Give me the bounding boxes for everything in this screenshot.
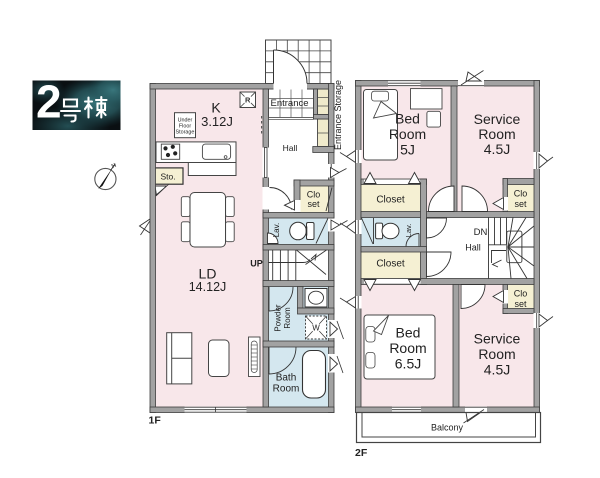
svg-text:set: set	[514, 199, 527, 209]
svg-text:Room: Room	[478, 346, 515, 362]
svg-text:Room: Room	[389, 340, 426, 356]
svg-text:Bed: Bed	[395, 111, 420, 127]
svg-text:Clo: Clo	[514, 289, 528, 299]
svg-text:1F: 1F	[149, 415, 162, 427]
svg-text:Room: Room	[478, 126, 515, 142]
svg-text:Lav.: Lav.	[272, 223, 281, 238]
svg-text:Lav.: Lav.	[404, 224, 413, 238]
svg-text:4.5J: 4.5J	[484, 141, 510, 157]
svg-text:Sto.: Sto.	[160, 172, 175, 182]
svg-text:4.5J: 4.5J	[484, 362, 510, 378]
svg-text:Closet: Closet	[376, 195, 405, 206]
svg-text:5J: 5J	[400, 142, 415, 158]
svg-text:Powder: Powder	[274, 304, 283, 331]
svg-text:Clo: Clo	[514, 189, 528, 199]
svg-text:14.12J: 14.12J	[189, 280, 227, 294]
svg-text:Room: Room	[283, 307, 292, 329]
svg-text:Entrance: Entrance	[270, 98, 308, 109]
svg-text:Service: Service	[474, 111, 521, 127]
svg-text:Room: Room	[389, 126, 426, 142]
svg-text:3.12J: 3.12J	[201, 114, 233, 129]
svg-text:Balcony: Balcony	[431, 423, 464, 433]
svg-text:UP: UP	[250, 259, 263, 269]
svg-text:Storage: Storage	[176, 130, 195, 136]
svg-text:set: set	[307, 199, 320, 209]
svg-text:Clo: Clo	[307, 190, 321, 200]
svg-text:Bath: Bath	[276, 373, 297, 384]
svg-text:Entrance Storage: Entrance Storage	[333, 80, 343, 150]
svg-text:Service: Service	[474, 331, 521, 347]
svg-text:Bed: Bed	[396, 325, 421, 341]
svg-text:2F: 2F	[355, 447, 368, 459]
svg-text:W: W	[312, 324, 320, 333]
svg-text:Closet: Closet	[376, 259, 405, 270]
svg-text:Room: Room	[273, 384, 300, 395]
svg-text:R: R	[245, 96, 251, 105]
svg-text:Hall: Hall	[465, 243, 481, 253]
svg-text:2: 2	[36, 76, 62, 128]
svg-text:DN: DN	[474, 227, 488, 238]
svg-text:Hall: Hall	[283, 143, 298, 153]
svg-text:6.5J: 6.5J	[395, 356, 421, 372]
svg-text:set: set	[514, 299, 527, 309]
